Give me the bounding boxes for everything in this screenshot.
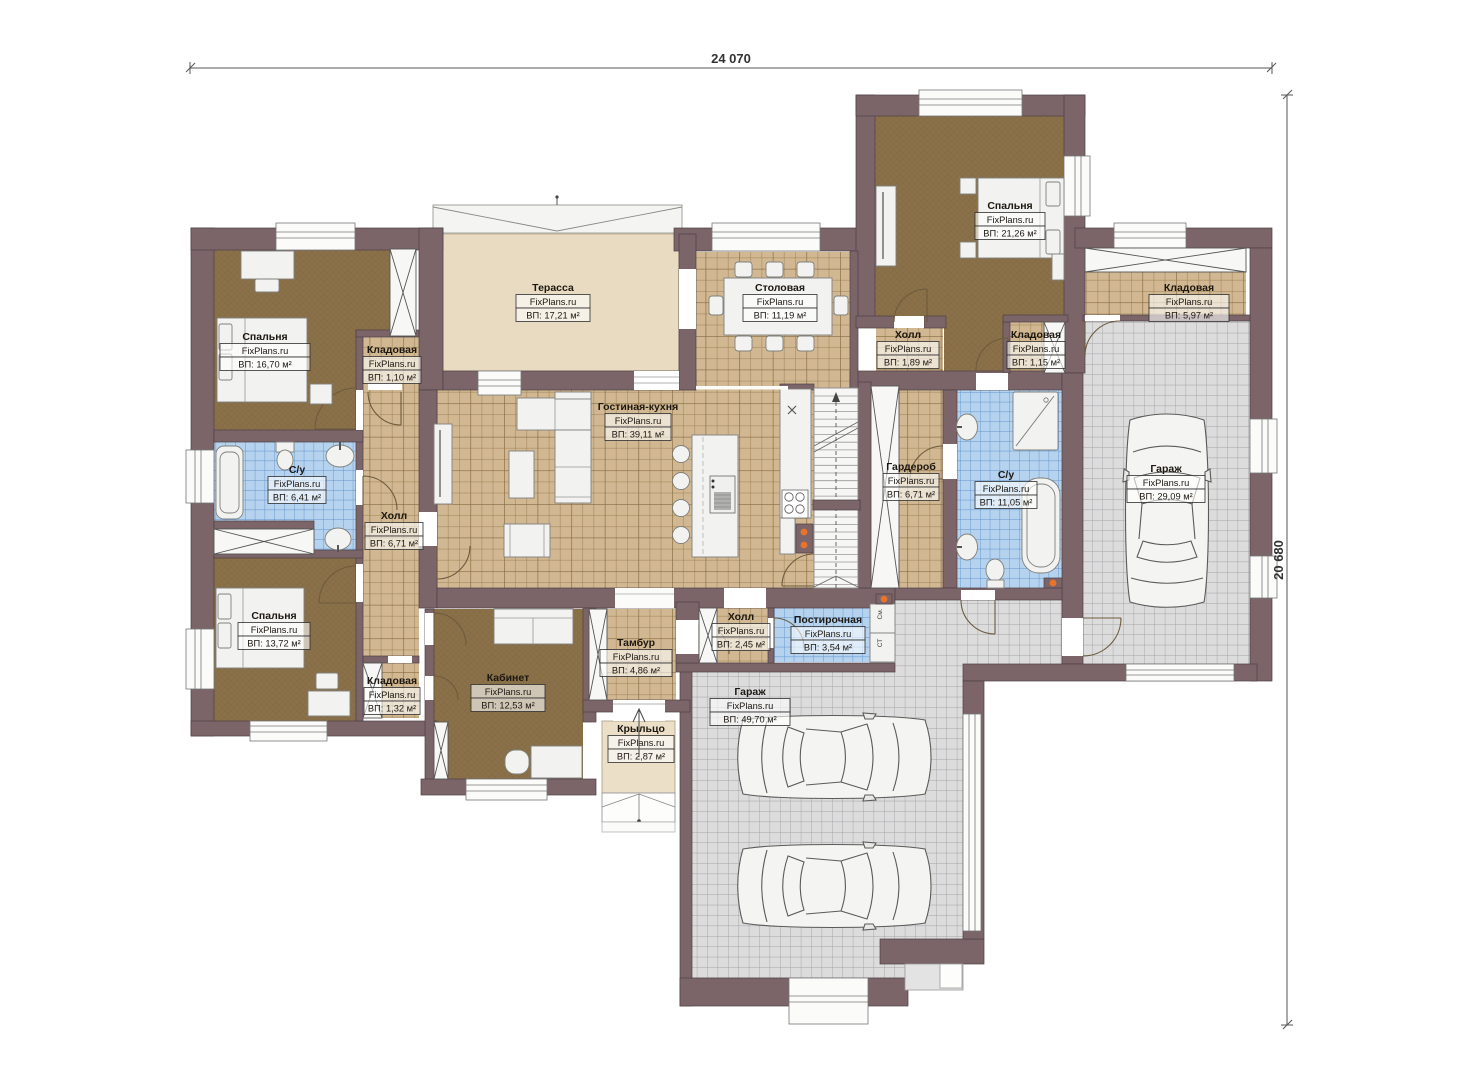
svg-text:ВП: 2,45 м²: ВП: 2,45 м² — [717, 640, 765, 650]
svg-text:Кладовая: Кладовая — [367, 344, 417, 356]
svg-text:ВП: 11,19 м²: ВП: 11,19 м² — [754, 311, 807, 321]
svg-text:FixPlans.ru: FixPlans.ru — [251, 625, 298, 635]
svg-text:Тамбур: Тамбур — [617, 637, 655, 649]
svg-text:Терасса: Терасса — [532, 282, 574, 294]
svg-text:FixPlans.ru: FixPlans.ru — [718, 626, 765, 636]
svg-text:ВП: 6,41 м²: ВП: 6,41 м² — [273, 493, 321, 503]
svg-text:Гардероб: Гардероб — [886, 461, 936, 473]
svg-text:ВП: 13,72 м²: ВП: 13,72 м² — [247, 639, 300, 649]
svg-text:ВП: 49,70 м²: ВП: 49,70 м² — [723, 715, 776, 725]
svg-text:Постирочная: Постирочная — [794, 614, 862, 626]
svg-text:ВП: 1,89 м²: ВП: 1,89 м² — [884, 358, 932, 368]
svg-text:ВП: 1,10 м²: ВП: 1,10 м² — [368, 373, 416, 383]
svg-text:ВП: 6,71 м²: ВП: 6,71 м² — [887, 490, 935, 500]
svg-text:FixPlans.ru: FixPlans.ru — [485, 687, 532, 697]
svg-text:Холл: Холл — [381, 510, 407, 522]
svg-text:FixPlans.ru: FixPlans.ru — [371, 525, 418, 535]
svg-text:24 070: 24 070 — [711, 51, 751, 66]
svg-text:FixPlans.ru: FixPlans.ru — [530, 297, 577, 307]
svg-text:Холл: Холл — [728, 611, 754, 623]
svg-text:FixPlans.ru: FixPlans.ru — [885, 344, 932, 354]
svg-text:ВП: 16,70 м²: ВП: 16,70 м² — [238, 360, 291, 370]
svg-text:Гараж: Гараж — [734, 686, 766, 698]
svg-text:ВП: 4,86 м²: ВП: 4,86 м² — [612, 666, 660, 676]
svg-text:С/у: С/у — [289, 464, 306, 476]
svg-text:ВП: 39,11 м²: ВП: 39,11 м² — [612, 430, 665, 440]
svg-text:Спальня: Спальня — [251, 610, 296, 622]
svg-text:Столовая: Столовая — [755, 282, 805, 294]
svg-text:ВП: 21,26 м²: ВП: 21,26 м² — [983, 229, 1036, 239]
svg-text:СТ: СТ — [877, 639, 884, 647]
svg-text:FixPlans.ru: FixPlans.ru — [983, 484, 1030, 494]
svg-text:FixPlans.ru: FixPlans.ru — [1013, 344, 1060, 354]
svg-text:Кладовая: Кладовая — [1011, 329, 1061, 341]
svg-text:FixPlans.ru: FixPlans.ru — [757, 297, 804, 307]
svg-text:ВП: 3,54 м²: ВП: 3,54 м² — [804, 643, 852, 653]
svg-text:FixPlans.ru: FixPlans.ru — [618, 738, 665, 748]
svg-text:FixPlans.ru: FixPlans.ru — [1166, 297, 1213, 307]
svg-text:ВП: 2,87 м²: ВП: 2,87 м² — [617, 752, 665, 762]
svg-text:FixPlans.ru: FixPlans.ru — [727, 701, 774, 711]
svg-text:FixPlans.ru: FixPlans.ru — [613, 652, 660, 662]
svg-text:ВП: 12,53 м²: ВП: 12,53 м² — [481, 701, 534, 711]
svg-text:См.: См. — [877, 608, 884, 619]
svg-text:FixPlans.ru: FixPlans.ru — [888, 476, 935, 486]
svg-text:ВП: 1,32 м²: ВП: 1,32 м² — [368, 704, 416, 714]
svg-text:ВП: 6,71 м²: ВП: 6,71 м² — [370, 539, 418, 549]
svg-text:FixPlans.ru: FixPlans.ru — [369, 359, 416, 369]
svg-text:Кладовая: Кладовая — [1164, 282, 1214, 294]
svg-text:Кабинет: Кабинет — [487, 672, 530, 684]
svg-text:ВП: 5,97 м²: ВП: 5,97 м² — [1165, 311, 1213, 321]
svg-text:FixPlans.ru: FixPlans.ru — [987, 215, 1034, 225]
svg-text:Кладовая: Кладовая — [367, 675, 417, 687]
svg-text:ВП: 11,05 м²: ВП: 11,05 м² — [980, 498, 1033, 508]
svg-text:ВП: 29,09 м²: ВП: 29,09 м² — [1139, 492, 1192, 502]
svg-text:Спальня: Спальня — [987, 200, 1032, 212]
svg-text:FixPlans.ru: FixPlans.ru — [369, 690, 416, 700]
svg-text:Крыльцо: Крыльцо — [617, 723, 665, 735]
svg-text:Гараж: Гараж — [1150, 463, 1182, 475]
svg-text:Холл: Холл — [895, 329, 921, 341]
svg-text:ВП: 17,21 м²: ВП: 17,21 м² — [526, 311, 579, 321]
svg-text:FixPlans.ru: FixPlans.ru — [805, 629, 852, 639]
svg-text:ВП: 1,15 м²: ВП: 1,15 м² — [1012, 358, 1060, 368]
svg-text:Гостиная-кухня: Гостиная-кухня — [598, 401, 678, 413]
svg-text:FixPlans.ru: FixPlans.ru — [274, 479, 321, 489]
svg-text:20 680: 20 680 — [1271, 540, 1286, 580]
svg-text:FixPlans.ru: FixPlans.ru — [242, 346, 289, 356]
svg-text:FixPlans.ru: FixPlans.ru — [615, 416, 662, 426]
svg-text:С/у: С/у — [998, 469, 1015, 481]
svg-text:FixPlans.ru: FixPlans.ru — [1143, 478, 1190, 488]
svg-text:Спальня: Спальня — [242, 331, 287, 343]
